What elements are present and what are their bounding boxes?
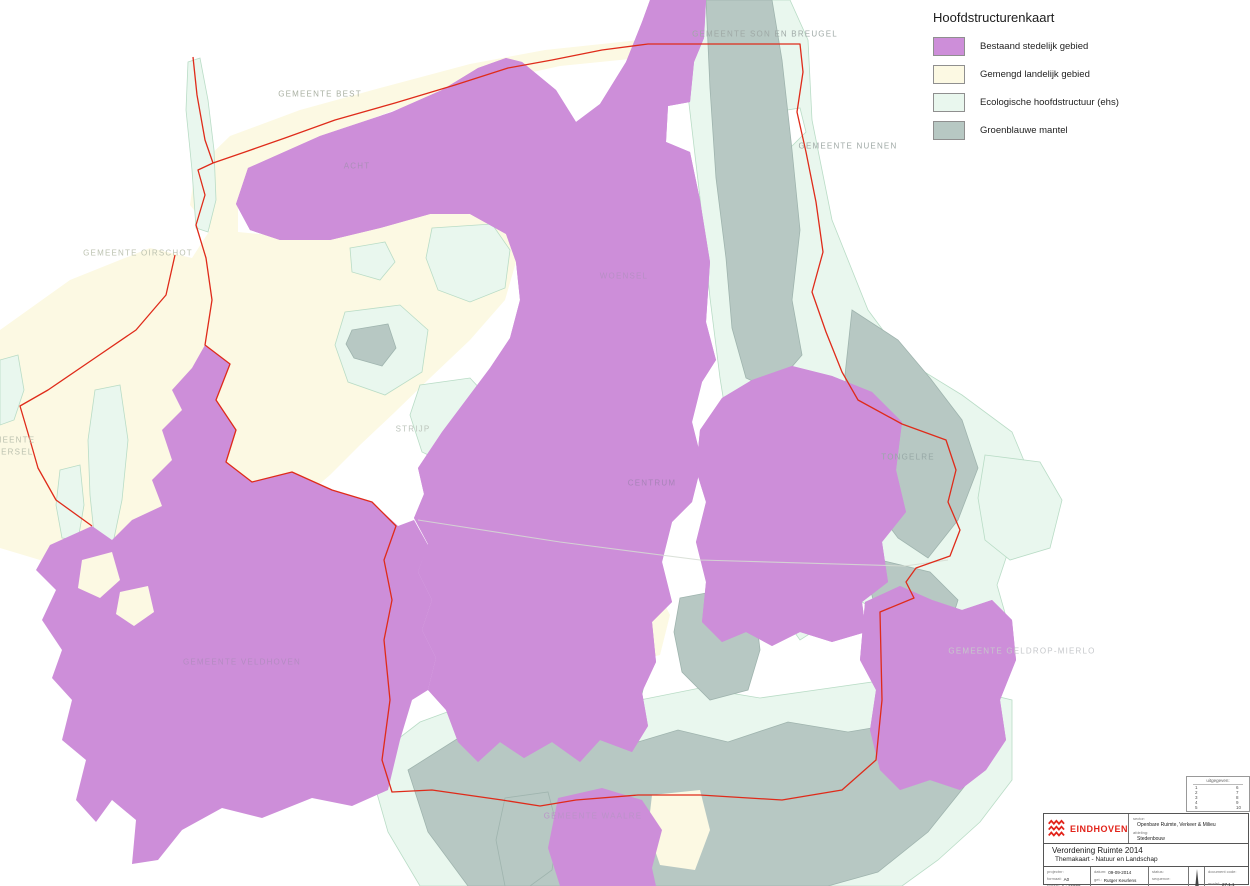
sheet-subtitle: Themakaart - Natuur en Landschap (1044, 856, 1248, 867)
projectnr-label: projectnr: (1047, 869, 1064, 876)
titleblock-col-datum: datum: 09-09-2014 get.: Rutger Keurlens … (1090, 867, 1148, 886)
legend-title: Hoofdstructurenkaart (933, 10, 1153, 25)
titleblock-col-arrow (1188, 867, 1204, 886)
legend-item-gemengd-landelijk: Gemengd landelijk gebied (933, 65, 1153, 84)
issued-box: uitgegeven: 12345 678910 (1186, 776, 1250, 812)
getekend-label: get.: (1094, 877, 1102, 885)
title-block: EINDHOVEN sector: Openbare Ruimte, Verke… (1043, 813, 1249, 885)
legend-item-groenblauwe-mantel: Groenblauwe mantel (933, 121, 1153, 140)
legend-label: Gemengd landelijk gebied (980, 69, 1090, 80)
map-sheet: GEMEENTE BESTGEMEENTE SON EN BREUGELGEME… (0, 0, 1250, 886)
afdeling-value: Stedenbouw (1133, 836, 1244, 844)
issued-box-header: uitgegeven: (1193, 777, 1243, 785)
legend-swatch-mantel (933, 121, 965, 140)
formaat-label: formaat: (1047, 876, 1062, 884)
legend-label: Groenblauwe mantel (980, 125, 1068, 136)
datum-value: 09-09-2014 (1108, 869, 1131, 877)
issued-number: 10 (1236, 806, 1241, 811)
document-code-label: document code: (1208, 869, 1236, 876)
legend-item-bestaand-stedelijk: Bestaand stedelijk gebied (933, 37, 1153, 56)
status-label: status: (1152, 869, 1164, 876)
legend-swatch-rural (933, 65, 965, 84)
eindhoven-waves-icon (1048, 816, 1067, 841)
street-texture (860, 586, 1016, 790)
model-label: model: (1208, 881, 1220, 886)
legend-swatch-ehs (933, 93, 965, 112)
formaat-value: A0 (1064, 876, 1070, 884)
legend: Hoofdstructurenkaart Bestaand stedelijk … (933, 10, 1153, 149)
sequence-label: sequence: (1152, 876, 1170, 883)
legend-label: Ecologische hoofdstructuur (ehs) (980, 97, 1119, 108)
titleblock-col-status: status: sequence: (1148, 867, 1188, 886)
sheet-title: Verordening Ruimte 2014 (1044, 844, 1248, 856)
sector-value: Openbare Ruimte, Verkeer & Milieu (1133, 822, 1244, 830)
sector-cell: sector: Openbare Ruimte, Verkeer & Milie… (1128, 814, 1248, 843)
north-arrow-icon (1193, 869, 1201, 886)
getekend-value: Rutger Keurlens (1104, 877, 1137, 885)
legend-swatch-urban (933, 37, 965, 56)
issued-number: 5 (1195, 806, 1198, 811)
titleblock-col-project: projectnr: formaat: A0 schaal: 1 : 15000 (1044, 867, 1090, 886)
titleblock-col-code: document code: model: 27.1.1 (1204, 867, 1248, 886)
legend-item-ehs: Ecologische hoofdstructuur (ehs) (933, 93, 1153, 112)
issued-column-2: 678910 (1236, 786, 1241, 811)
issued-column-1: 12345 (1195, 786, 1198, 811)
legend-label: Bestaand stedelijk gebied (980, 41, 1088, 52)
eindhoven-logo-text: EINDHOVEN (1070, 824, 1128, 834)
eindhoven-logo: EINDHOVEN (1044, 814, 1128, 843)
datum-label: datum: (1094, 869, 1106, 877)
model-value: 27.1.1 (1222, 881, 1235, 886)
